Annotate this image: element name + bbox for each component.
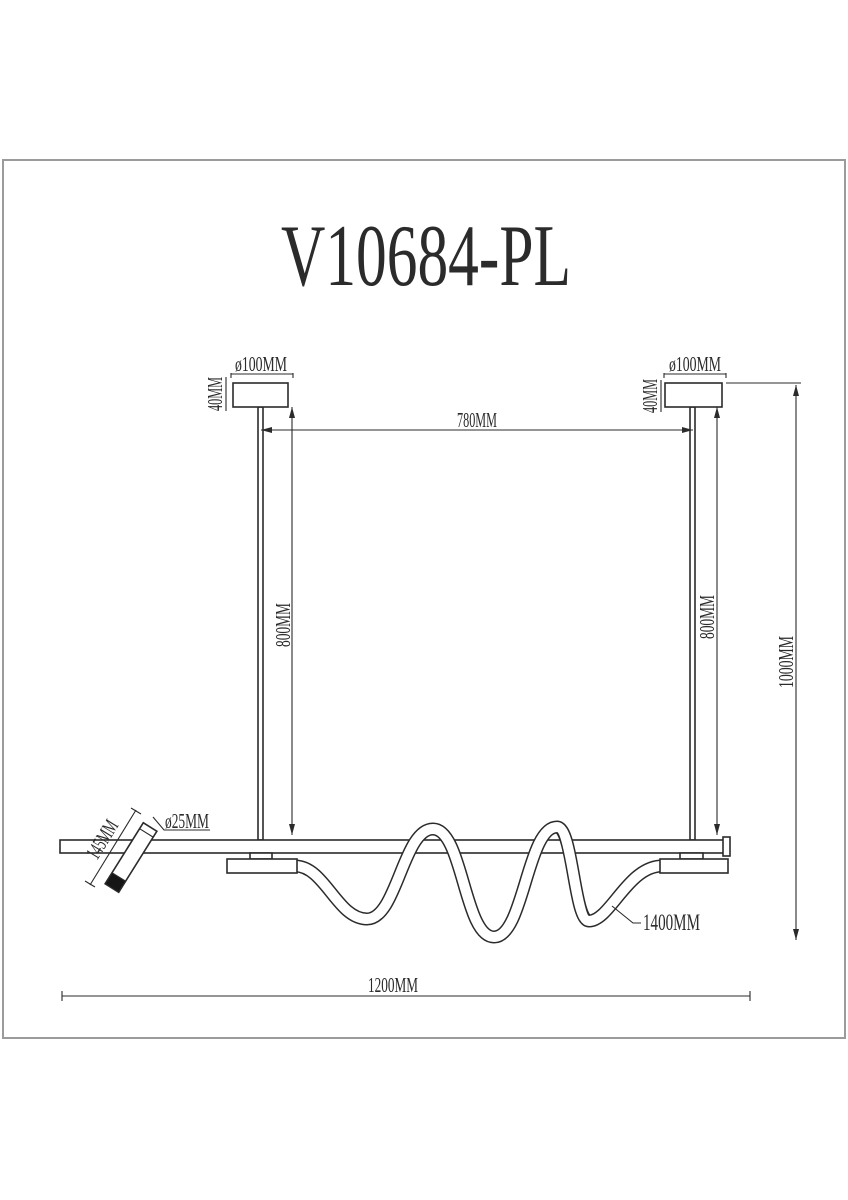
spot-diameter-label: ø25MM [165,809,209,833]
overall-height-label: 1000MM [774,636,798,688]
left-connector-body [227,859,297,873]
left-suspension: ø100MM 40MM [203,352,293,840]
left-rod [258,407,263,840]
overall-height-arrow-top [793,385,799,396]
right-connector-body [660,859,728,873]
left-canopy-thickness-label: 40MM [203,377,227,411]
tube-length-label: 1400MM [643,910,700,935]
technical-drawing: V10684-PL ø100MM 40MM ø100MM 40MM 780MM … [0,0,848,1200]
rod-spacing-label: 780MM [457,408,497,432]
dimension-overall-height: 1000MM [726,383,801,940]
left-canopy [233,383,288,407]
dimension-right-rod: 800MM [695,407,720,835]
right-canopy-diameter-label: ø100MM [669,352,721,376]
right-rod-length-label: 800MM [695,595,719,639]
dimension-spot-diameter: ø25MM [153,809,210,833]
right-canopy [665,383,722,407]
right-rod-arrow-top [714,407,720,418]
dimension-bar-length: 1200MM [62,973,750,1001]
right-connector-tab [680,853,703,859]
left-rod-arrow-bottom [289,824,295,835]
bar-length-label: 1200MM [368,973,418,997]
dimension-rod-spacing: 780MM [261,408,693,433]
left-connector-tab [250,853,272,859]
left-rod-arrow-top [289,407,295,418]
left-canopy-diameter-label: ø100MM [235,352,287,376]
left-rod-length-label: 800MM [271,603,295,647]
horizontal-bar [60,840,724,853]
right-canopy-thickness-label: 40MM [638,379,662,413]
dimension-left-rod: 800MM [271,407,295,835]
dimension-tube-length: 1400MM [612,906,700,935]
product-code-title: V10684-PL [281,208,571,305]
right-rod-arrow-bottom [714,824,720,835]
bar-right-end-cap [723,837,730,856]
overall-height-arrow-bottom [793,929,799,940]
